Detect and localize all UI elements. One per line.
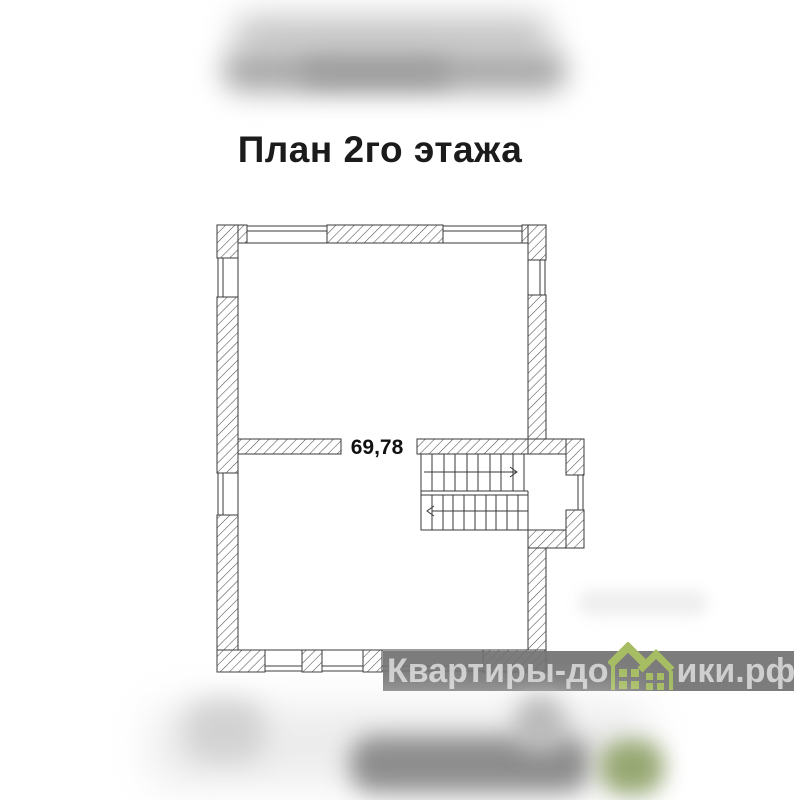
wall-segment <box>302 650 322 672</box>
house-window <box>657 673 664 680</box>
house-wall <box>669 671 673 690</box>
wall-segment <box>417 439 584 454</box>
blurred-footer-logo <box>600 740 664 794</box>
stair-landing-divider <box>421 491 528 495</box>
wall-segment <box>528 225 546 260</box>
blurred-footer-text <box>515 695 565 753</box>
wall-segment <box>238 439 341 454</box>
wall-segment <box>327 225 443 243</box>
window <box>578 475 583 510</box>
wall-segment <box>217 297 238 473</box>
house-logo-icon <box>608 642 676 692</box>
house-roof <box>610 647 646 665</box>
wall-segment <box>528 295 546 439</box>
wall-segment <box>363 650 382 672</box>
wall-segment <box>566 439 584 475</box>
house-window <box>631 669 639 677</box>
window <box>322 666 363 671</box>
stair-treads-lower <box>432 495 518 530</box>
screenshot-root: План 2го этажа <box>0 0 800 800</box>
house-window <box>619 681 627 689</box>
window <box>540 260 545 295</box>
house-window <box>646 683 653 690</box>
staircase <box>421 454 528 530</box>
area-label: 69,78 <box>351 436 404 459</box>
wall-segment <box>217 225 238 258</box>
house-window <box>657 683 664 690</box>
window <box>218 473 223 515</box>
house-window <box>619 669 627 677</box>
house-window <box>646 673 653 680</box>
wall-segment <box>566 510 584 548</box>
window <box>443 226 522 231</box>
window <box>218 258 223 297</box>
faint-text-smudge <box>578 590 708 616</box>
house-wall <box>611 666 615 690</box>
window <box>265 666 302 671</box>
blurred-footer-text <box>185 700 265 762</box>
watermark-text-left: Квартиры-до <box>383 651 608 691</box>
window <box>247 226 327 231</box>
watermark-bar: Квартиры-до ики.рф <box>383 651 794 691</box>
house-window <box>631 681 639 689</box>
watermark-text-right: ики.рф <box>676 651 795 691</box>
house-roof <box>640 654 672 670</box>
wall-segment <box>217 515 238 672</box>
wall-segment <box>217 650 265 672</box>
